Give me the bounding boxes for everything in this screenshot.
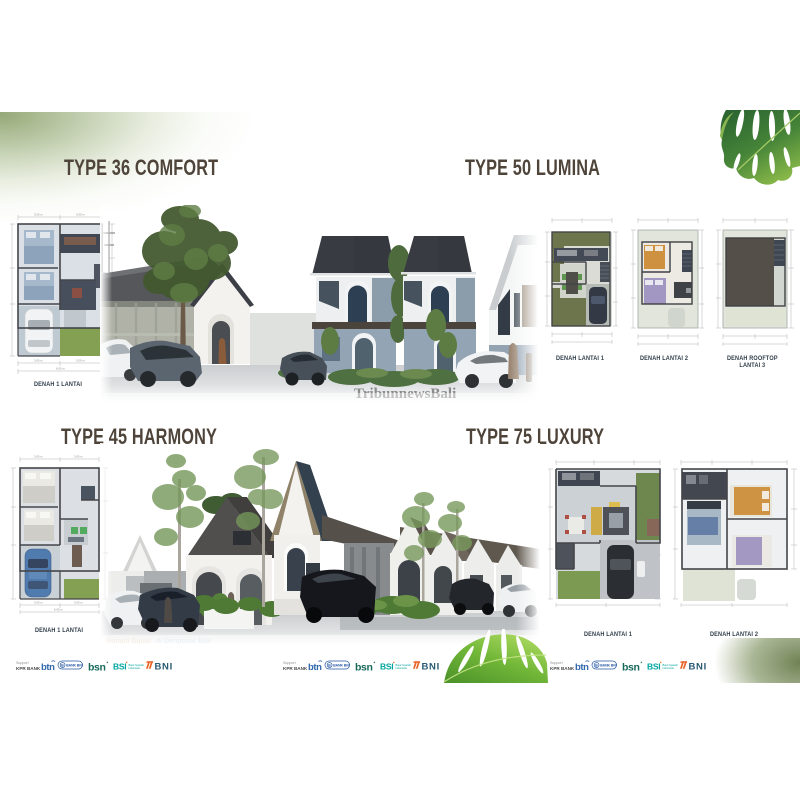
svg-text:3.00 m: 3.00 m [34,455,43,459]
svg-text:3.00 m: 3.00 m [74,601,83,605]
svg-text:3.00 m: 3.00 m [34,213,43,217]
svg-text:3.00 m: 3.00 m [74,455,83,459]
svg-text:3.00 m: 3.00 m [34,601,43,605]
svg-text:6.00 m: 6.00 m [56,367,65,371]
svg-text:3.00 m: 3.00 m [76,359,85,363]
svg-text:3.00 m: 3.00 m [34,359,43,363]
svg-text:6.00 m: 6.00 m [54,608,63,612]
svg-text:3.00 m: 3.00 m [76,213,85,217]
